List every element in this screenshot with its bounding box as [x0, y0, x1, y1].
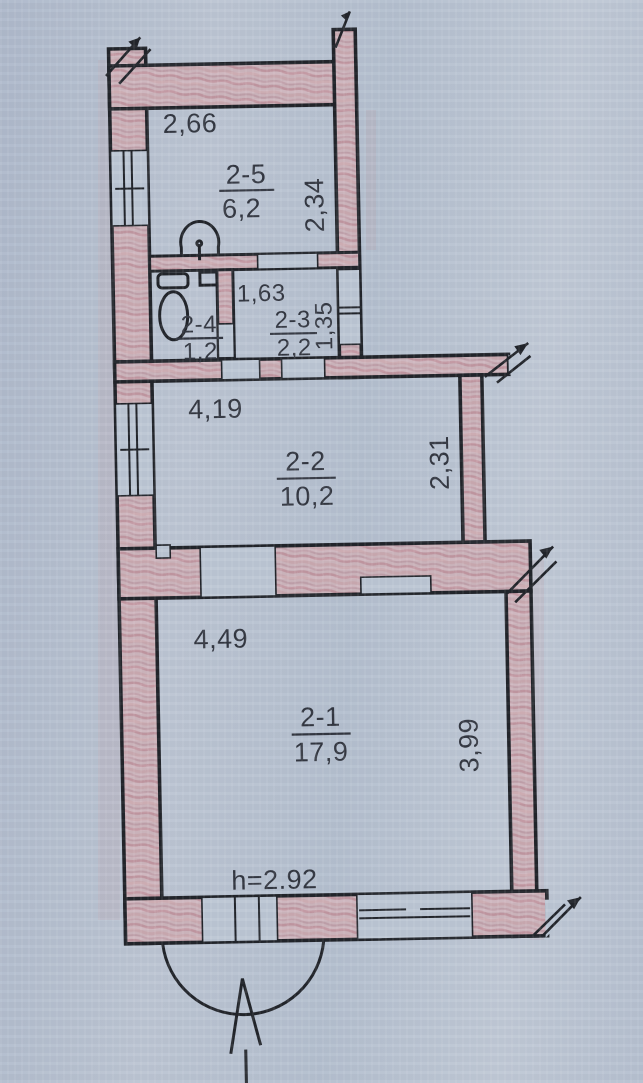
- dim-2-1-height: 3,99: [453, 718, 484, 773]
- ceiling-height-label: h=2.92: [231, 864, 318, 896]
- room-2-2-area: 10,2: [280, 481, 335, 512]
- column-2-2-corner: [156, 545, 170, 558]
- door-hallway-left: [222, 359, 260, 380]
- dim-2-2-width: 4,19: [188, 393, 243, 424]
- room-2-2-fraction-line: [277, 478, 336, 479]
- entrance-arrow: [229, 978, 261, 1083]
- window-left-lower: [115, 403, 154, 496]
- room-2-3-area: 2,2: [277, 334, 312, 362]
- door-2-4: [218, 324, 235, 358]
- room-2-5-label: 2-5: [225, 159, 266, 190]
- room-2-1-label: 2-1: [300, 702, 341, 733]
- door-2-1: [200, 546, 276, 597]
- window-left-upper: [110, 150, 148, 226]
- room-2-1-fraction-line: [292, 733, 351, 734]
- dim-2-1-width: 4,49: [193, 623, 248, 654]
- wall-2-2-right: [460, 375, 485, 542]
- room-2-3-label: 2-3: [274, 306, 311, 334]
- dim-2-5-height: 2,34: [299, 177, 330, 232]
- wall-top-exterior: [109, 61, 357, 109]
- dim-2-3-width: 1,63: [237, 280, 286, 308]
- wall-2-1-right: [506, 591, 538, 936]
- dim-2-3-height: 1,35: [310, 301, 338, 350]
- vent-shaft: [200, 272, 217, 285]
- room-2-5-area: 6,2: [222, 193, 262, 224]
- room-2-4-area: 1,2: [183, 338, 218, 366]
- wall-niche: [361, 576, 431, 594]
- room-2-4-label: 2-4: [180, 311, 217, 339]
- wall-bottom-exterior: [125, 891, 548, 944]
- labels: 2,66 2-5 6,2 2,34 2-4 1,2 1,63 2-3 2,2 1…: [162, 103, 486, 897]
- room-2-5-fraction-line: [219, 190, 274, 191]
- room-2-1-area: 17,9: [293, 737, 348, 768]
- floor-plan-canvas: 2,66 2-5 6,2 2,34 2-4 1,2 1,63 2-3 2,2 1…: [0, 0, 643, 1083]
- partition-right-2-3: [338, 269, 361, 344]
- wall-2-2-2-1: [118, 541, 531, 599]
- window-bottom: [357, 892, 473, 939]
- dim-2-5-width: 2,66: [162, 108, 217, 139]
- dim-2-2-height: 2,31: [424, 435, 455, 490]
- door-bottom-entry: [202, 896, 278, 942]
- room-2-2-label: 2-2: [285, 446, 326, 477]
- door-2-5: [257, 253, 317, 269]
